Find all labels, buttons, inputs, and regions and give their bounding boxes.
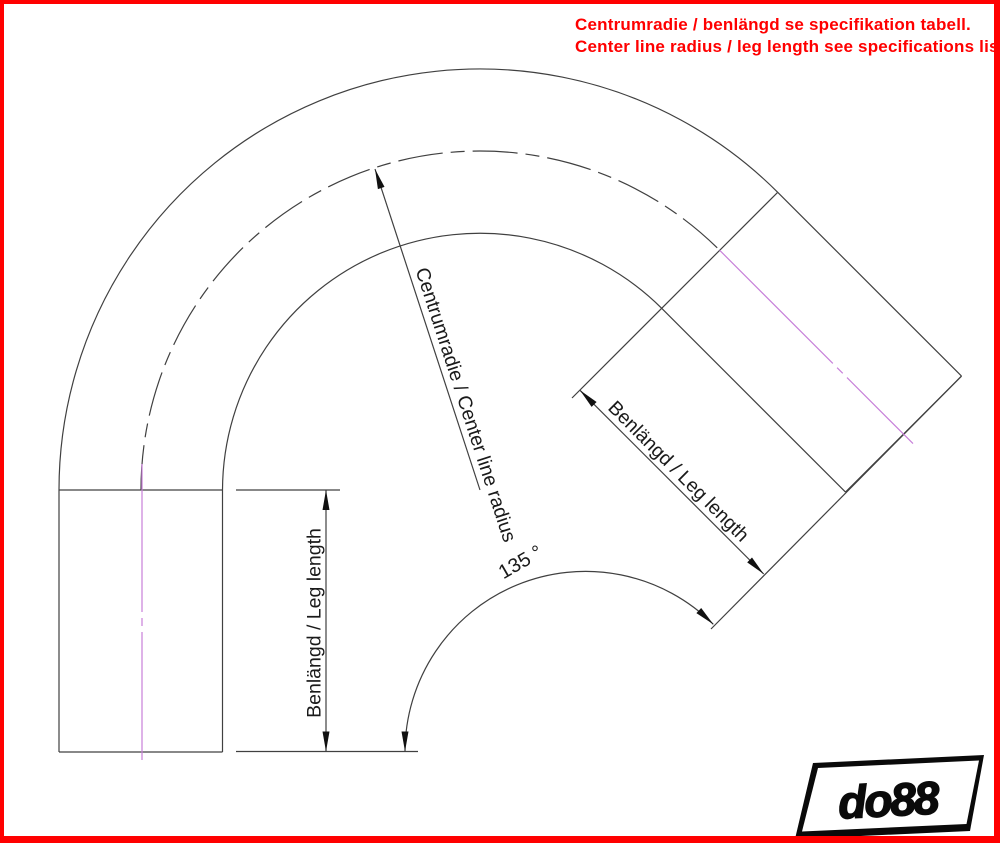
leg-centerlines: [142, 250, 913, 760]
left-leg-length-label: Benlängd / Leg length: [304, 528, 327, 718]
elbow-drawing: [0, 0, 1000, 843]
drawing-sheet: Centrumradie / benlängd se specifikation…: [0, 0, 1000, 843]
specification-note-line2: Center line radius / leg length see spec…: [575, 36, 1000, 58]
left-leg-outline: [59, 490, 223, 752]
do88-logo: do88: [780, 745, 995, 843]
specification-note: Centrumradie / benlängd se specifikation…: [575, 14, 1000, 58]
angle-dimension-arc: [405, 571, 713, 751]
extension-lines: [236, 490, 418, 752]
specification-note-line1: Centrumradie / benlängd se specifikation…: [575, 14, 1000, 36]
arrowheads: [323, 169, 764, 752]
logo-text: do88: [837, 771, 941, 828]
dimension-lines: [326, 169, 764, 752]
